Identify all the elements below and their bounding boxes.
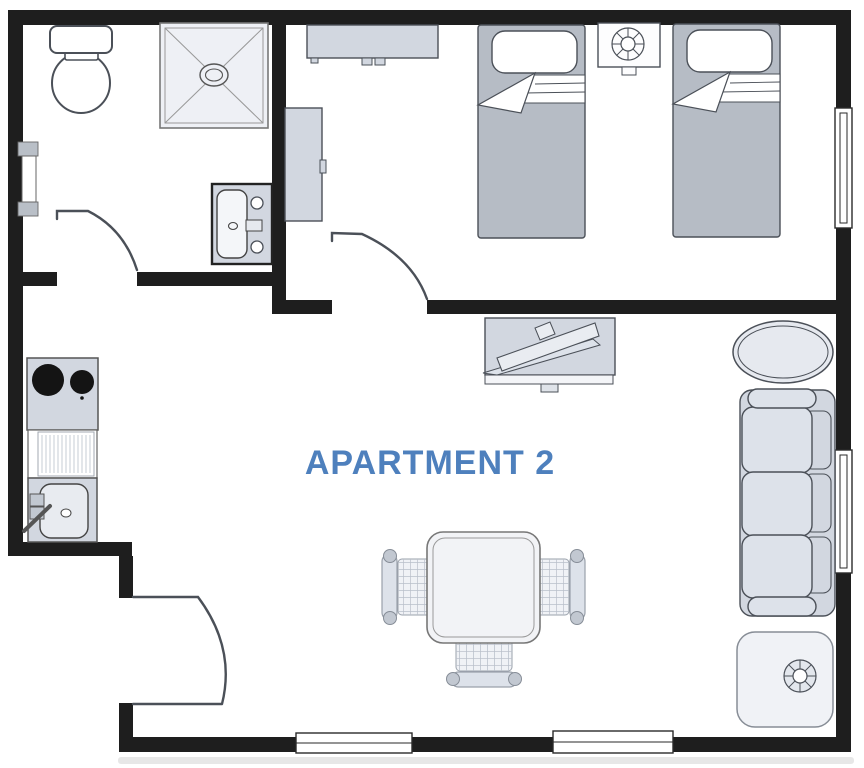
bathroom — [50, 23, 272, 264]
tv-cabinet — [483, 318, 615, 392]
kitchen-sink — [24, 478, 97, 542]
bathroom-sink — [212, 184, 272, 264]
wall-bathroom-right — [137, 272, 286, 286]
bottom-window-2 — [553, 731, 673, 753]
floor-plan-drawing — [0, 0, 864, 768]
single-bed-2 — [673, 24, 780, 237]
sofa — [740, 389, 835, 616]
floor-plan-canvas: APARTMENT 2 — [0, 0, 864, 768]
seat-cushion — [742, 535, 812, 598]
wall-top — [8, 10, 851, 25]
faucet — [30, 494, 44, 506]
seat-cushion — [742, 407, 812, 473]
wall-bottom — [119, 737, 851, 752]
living-window — [835, 450, 852, 573]
toilet — [50, 26, 112, 113]
bottom-window-1 — [296, 733, 412, 753]
bathroom-door-swing — [57, 211, 137, 270]
seat-cushion — [742, 472, 812, 536]
apartment-label: APARTMENT 2 — [280, 444, 580, 483]
entry-door-swing — [133, 597, 226, 704]
tap-control — [251, 241, 263, 253]
tap-control — [251, 197, 263, 209]
dresser — [307, 25, 438, 65]
shower-drain — [200, 64, 228, 86]
wardrobe-handle — [320, 160, 326, 173]
wall-bedroom-left — [272, 300, 332, 314]
burner-large — [32, 364, 64, 396]
nightstand-with-fan — [598, 23, 660, 75]
armrest — [748, 597, 816, 616]
oval-table — [733, 321, 833, 383]
soap-dish — [246, 220, 262, 231]
table-fan-icon — [612, 28, 644, 60]
stove-top — [27, 358, 98, 430]
wall-entry-lower — [119, 703, 133, 743]
living-area — [24, 318, 835, 727]
kitchen-drainer — [28, 430, 97, 478]
wall-step — [8, 542, 132, 556]
dining-table — [427, 532, 540, 643]
wall-entry-upper — [119, 556, 133, 598]
dining-set — [382, 532, 585, 687]
scan-shadow-artifact — [118, 757, 854, 764]
armrest — [748, 389, 816, 408]
wall-bathroom-left — [8, 272, 57, 286]
bedroom — [285, 23, 780, 238]
corner-table-with-fan — [737, 632, 833, 727]
burner-small — [70, 370, 94, 394]
single-bed-1 — [478, 25, 585, 238]
shower — [160, 23, 268, 128]
table-fan-icon — [784, 660, 816, 692]
wall-bedroom-right — [427, 300, 851, 314]
wall-bath-bedroom — [272, 10, 286, 314]
bedroom-door-swing — [332, 233, 427, 299]
bedroom-window — [835, 108, 852, 228]
kitchen — [24, 358, 98, 542]
wardrobe — [285, 108, 326, 221]
